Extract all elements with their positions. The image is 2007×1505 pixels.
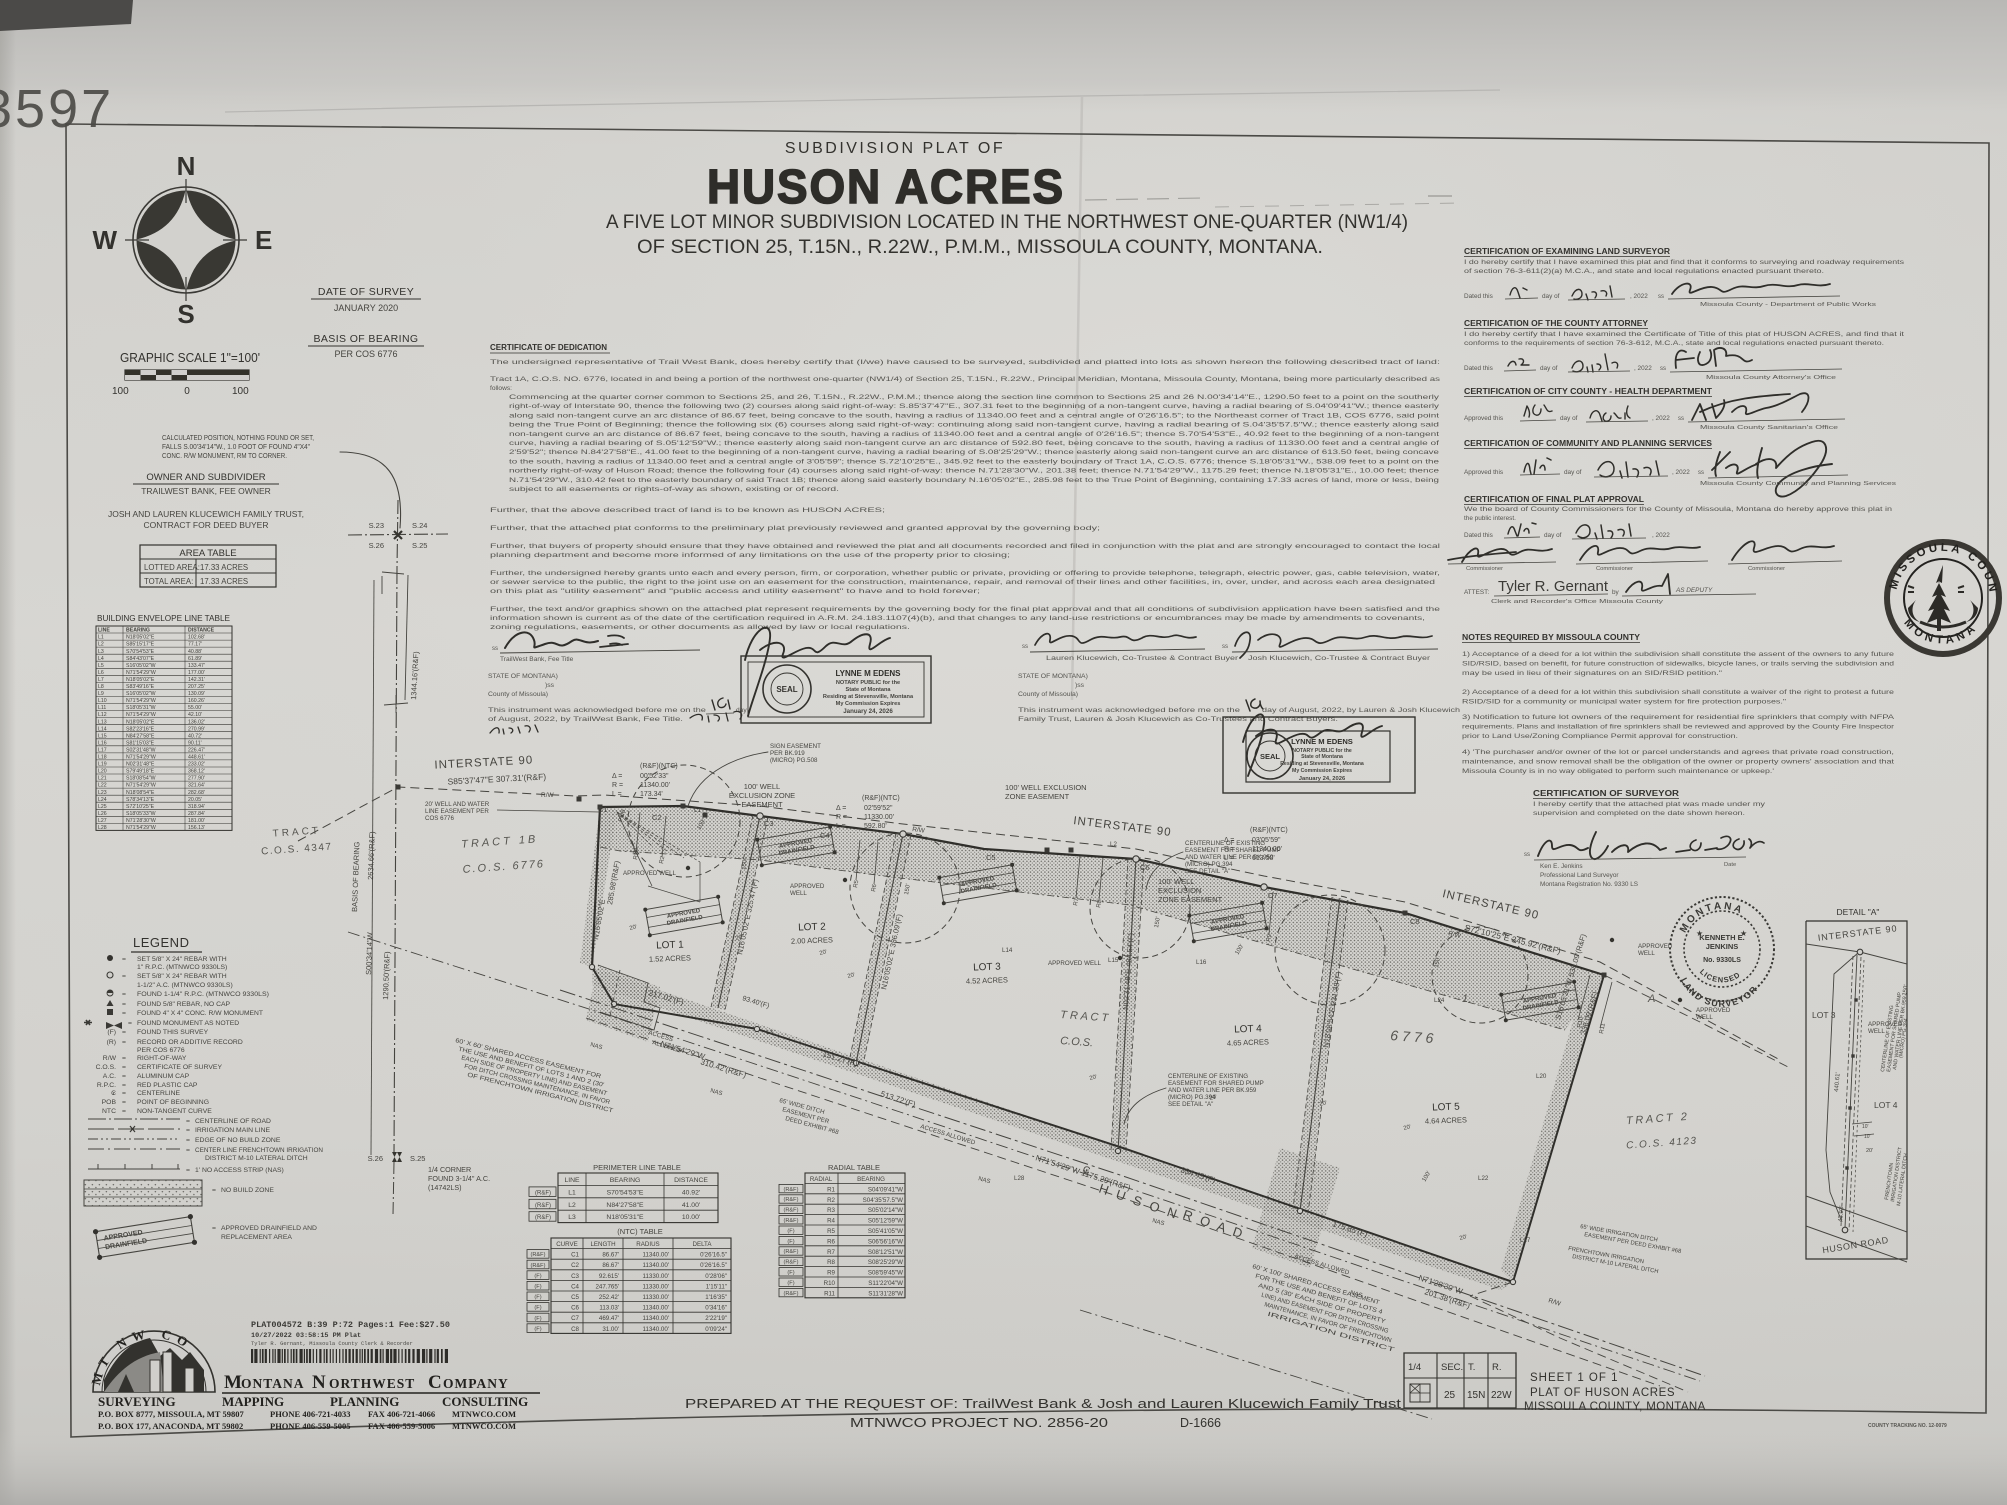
svg-text:SET 5/8" X 24" REBAR WITH: SET 5/8" X 24" REBAR WITH [137, 956, 227, 963]
svg-text:20.05': 20.05' [188, 797, 202, 803]
svg-text:, 2022: , 2022 [1652, 415, 1670, 422]
svg-text:Montana Registration No. 9330: Montana Registration No. 9330 LS [1540, 881, 1638, 888]
svg-text:IRRIGATION MAIN LINE: IRRIGATION MAIN LINE [195, 1127, 270, 1134]
svg-text:S70'54'53"E: S70'54'53"E [607, 1189, 644, 1196]
svg-text:CENTERLINE OF ROAD: CENTERLINE OF ROAD [195, 1118, 271, 1125]
svg-text:PLAT OF HUSON ACRES: PLAT OF HUSON ACRES [1530, 1387, 1675, 1399]
svg-text:Tyler R. Gernant: Tyler R. Gernant [1498, 578, 1609, 595]
svg-text:00'52'33": 00'52'33" [640, 773, 669, 780]
svg-text:RADIUS: RADIUS [636, 1241, 659, 1248]
svg-text:day of: day of [1542, 293, 1560, 300]
svg-text:DELTA: DELTA [692, 1241, 712, 1248]
svg-text:conforms to the requirements o: conforms to the requirements of section … [1464, 340, 1884, 347]
svg-text:Commissioner: Commissioner [1466, 566, 1503, 572]
svg-text:STATE OF MONTANA): STATE OF MONTANA) [488, 673, 558, 680]
svg-text:R4: R4 [827, 1218, 835, 1225]
svg-text:L13: L13 [98, 719, 107, 725]
svg-text:D-1666: D-1666 [1180, 1416, 1221, 1430]
svg-text:northerly right-of-way of Huso: northerly right-of-way of Huson Road; th… [509, 468, 1439, 475]
svg-text:FAX 406-721-4066: FAX 406-721-4066 [368, 1409, 435, 1419]
svg-text:CERTIFICATION OF CITY COUNTY -: CERTIFICATION OF CITY COUNTY - HEALTH DE… [1464, 387, 1712, 396]
svg-text:M: M [224, 1372, 242, 1393]
svg-text:R11: R11 [824, 1290, 835, 1297]
svg-text:S05'02'14"W: S05'02'14"W [868, 1207, 903, 1214]
svg-text:L28: L28 [98, 825, 107, 831]
svg-text:DISTRICT M-10 LATERAL DITCH: DISTRICT M-10 LATERAL DITCH [205, 1155, 308, 1162]
svg-text:(MICRO) PG.508: (MICRO) PG.508 [770, 757, 818, 764]
svg-text:L14: L14 [98, 726, 107, 732]
svg-text:PERIMETER LINE TABLE: PERIMETER LINE TABLE [593, 1163, 681, 1172]
svg-text:100' WELL: 100' WELL [1158, 877, 1194, 886]
svg-text:(F): (F) [787, 1239, 794, 1245]
svg-text:LYNNE M EDENS: LYNNE M EDENS [835, 669, 901, 678]
svg-text:FOUND 3-1/4" A.C.: FOUND 3-1/4" A.C. [428, 1174, 490, 1183]
svg-text:282.68': 282.68' [188, 790, 205, 796]
svg-text:177.00': 177.00' [188, 670, 205, 676]
svg-text:WELL: WELL [1638, 950, 1655, 957]
svg-text:S72'10'25"E: S72'10'25"E [126, 804, 155, 810]
svg-text:C2: C2 [571, 1262, 579, 1269]
svg-text:LOT 2: LOT 2 [798, 922, 826, 934]
svg-text:Clerk and Recorder's Office Mi: Clerk and Recorder's Office Missoula Cou… [1491, 599, 1663, 605]
svg-text:(F): (F) [107, 1029, 116, 1036]
svg-text:(R&F): (R&F) [784, 1208, 799, 1214]
svg-text:4.52 ACRES: 4.52 ACRES [966, 975, 1008, 985]
svg-text:FOUND THIS SURVEY: FOUND THIS SURVEY [137, 1029, 209, 1036]
svg-text:0'26'16.5": 0'26'16.5" [700, 1262, 727, 1269]
svg-text:100' WELL: 100' WELL [744, 782, 780, 791]
svg-text:LOT 4: LOT 4 [1874, 1100, 1898, 1110]
svg-text:(R&F)(NTC): (R&F)(NTC) [862, 795, 900, 802]
svg-text:L5: L5 [98, 663, 104, 669]
svg-text:SEAL: SEAL [1260, 752, 1280, 761]
svg-text:L23: L23 [98, 790, 107, 796]
svg-text:(F): (F) [787, 1270, 794, 1276]
svg-text:or sewer service to the public: or sewer service to the public, the righ… [490, 579, 1436, 586]
svg-text:592.80': 592.80' [864, 823, 887, 830]
svg-text:ss: ss [1678, 416, 1684, 422]
svg-text:APPROVED: APPROVED [790, 883, 825, 890]
svg-text:BEARING: BEARING [610, 1177, 641, 1184]
svg-text:6776: 6776 [1390, 1027, 1438, 1046]
svg-text:C5: C5 [986, 853, 996, 862]
svg-text:92.615': 92.615' [599, 1273, 619, 1280]
svg-text:S.23: S.23 [369, 521, 384, 530]
svg-text:2634.66'(R&F): 2634.66'(R&F) [366, 831, 377, 880]
svg-text:along said non-tangent curve a: along said non-tangent curve an arc dist… [509, 412, 1439, 419]
svg-text:=: = [122, 1039, 126, 1046]
svg-text:C3: C3 [571, 1273, 579, 1280]
svg-text:L6: L6 [98, 670, 104, 676]
svg-text:S.24: S.24 [412, 521, 427, 530]
svg-text:PHONE 406-721-4033: PHONE 406-721-4033 [270, 1409, 351, 1419]
svg-text:APPROVED: APPROVED [1696, 1007, 1731, 1014]
svg-text:0'34'16": 0'34'16" [705, 1305, 727, 1312]
svg-text:10': 10' [1862, 1124, 1869, 1130]
svg-text:368.12': 368.12' [188, 769, 205, 775]
svg-text:S79'49'18"E: S79'49'18"E [126, 769, 155, 775]
svg-text:0: 0 [184, 386, 190, 397]
svg-text:Dated this: Dated this [1464, 365, 1493, 372]
svg-text:AS DEPUTY: AS DEPUTY [1675, 587, 1713, 594]
svg-text:(NTC) TABLE: (NTC) TABLE [617, 1227, 663, 1236]
svg-text:APPROVED WELL: APPROVED WELL [623, 870, 677, 877]
svg-text:R9: R9 [827, 1270, 835, 1277]
svg-text:N18'05'02"E: N18'05'02"E [126, 719, 155, 725]
svg-text:on this plat as "utility easem: on this plat as "utility easement" and "… [490, 588, 980, 595]
svg-text:11330.00': 11330.00' [642, 1273, 669, 1280]
svg-text:PER COS 6776: PER COS 6776 [334, 349, 397, 359]
svg-text:Tyler R. Gernant, Missoula Cou: Tyler R. Gernant, Missoula County Clerk … [251, 1341, 413, 1347]
svg-text:BEARING: BEARING [126, 628, 150, 634]
svg-text:(14742LS): (14742LS) [428, 1183, 462, 1192]
svg-text:=: = [122, 956, 126, 963]
svg-text:L27: L27 [98, 818, 107, 824]
svg-text:NTC: NTC [102, 1108, 116, 1115]
svg-text:WELL: WELL [1696, 1014, 1713, 1021]
svg-text:C.O.S.: C.O.S. [1060, 1035, 1094, 1049]
svg-text:CERTIFICATION OF SURVEYOR: CERTIFICATION OF SURVEYOR [1533, 789, 1679, 798]
svg-text:L19: L19 [98, 762, 107, 768]
svg-text:10.00': 10.00' [682, 1214, 700, 1221]
svg-text:to the south, having a radius: to the south, having a radius of 11340.0… [509, 458, 1439, 465]
svg-text:DATE OF SURVEY: DATE OF SURVEY [318, 286, 414, 298]
svg-text:11330.00': 11330.00' [642, 1294, 669, 1301]
svg-text:Residing at Stevensville, Mont: Residing at Stevensville, Montana [1280, 761, 1364, 767]
svg-text:S82'23'16"E: S82'23'16"E [126, 726, 155, 732]
svg-text:L8: L8 [98, 684, 104, 690]
svg-text:20': 20' [1866, 1148, 1873, 1154]
svg-text:AREA TABLE: AREA TABLE [179, 548, 236, 559]
svg-text:PHONE 406-559-5005: PHONE 406-559-5005 [270, 1421, 351, 1431]
svg-text:C.O.S.: C.O.S. [96, 1064, 117, 1071]
svg-text:(R&F): (R&F) [531, 1263, 546, 1269]
svg-text:N18'05'02"E: N18'05'02"E [126, 635, 155, 641]
svg-text:follows:: follows: [490, 385, 512, 392]
svg-text:SID/RSID, based on benefit, fo: SID/RSID, based on benefit, for future c… [1462, 661, 1895, 668]
svg-text:R1: R1 [827, 1186, 835, 1193]
svg-text:(R&F): (R&F) [784, 1260, 799, 1266]
svg-text:TRAILWEST BANK, FEE OWNER: TRAILWEST BANK, FEE OWNER [141, 486, 271, 496]
svg-text:321.64': 321.64' [188, 783, 205, 789]
svg-text:LEGEND: LEGEND [133, 935, 189, 950]
svg-text:CALCULATED POSITION, NOTHING F: CALCULATED POSITION, NOTHING FOUND OR SE… [162, 435, 314, 442]
svg-text:WELL: WELL [1868, 1028, 1885, 1035]
svg-text:173.34': 173.34' [640, 791, 663, 798]
svg-text:P.O. BOX 8777, MISSOULA, MT: P.O. BOX 8777, MISSOULA, MT 59807 [98, 1409, 244, 1419]
svg-text:Missoula County Sanitarian's O: Missoula County Sanitarian's Office [1700, 425, 1838, 431]
svg-text:(F): (F) [534, 1273, 541, 1279]
svg-text:County of Missoula): County of Missoula) [488, 691, 548, 698]
svg-text:3) Notification to future lot: 3) Notification to future lot owners of … [1462, 714, 1895, 721]
svg-text:L28: L28 [1014, 1175, 1025, 1182]
svg-text:N71'54'29"W: N71'54'29"W [126, 670, 156, 676]
svg-text:CONC. R/W MONUMENT, RM TO CORN: CONC. R/W MONUMENT, RM TO CORNER. [162, 453, 287, 460]
svg-text:Commissioner: Commissioner [1596, 566, 1633, 572]
svg-text:S70'54'53"E: S70'54'53"E [126, 649, 155, 655]
svg-text:COUNTY TRACKING NO. 12-0079: COUNTY TRACKING NO. 12-0079 [1868, 1423, 1947, 1429]
svg-text:R10: R10 [824, 1280, 836, 1287]
svg-text:2'59'52"; thence N.84'27'58"E.: 2'59'52"; thence N.84'27'58"E., 41.00 fe… [509, 449, 1439, 456]
svg-text:226.47': 226.47' [188, 747, 205, 753]
svg-text:N18'05'02"E: N18'05'02"E [126, 677, 155, 683]
svg-text:January 24, 2026: January 24, 2026 [843, 708, 893, 715]
svg-text:CURVE: CURVE [556, 1241, 578, 1248]
svg-text:=: = [122, 991, 126, 998]
svg-text:APPROVED: APPROVED [1868, 1021, 1903, 1028]
svg-text:S08'59'45"W: S08'59'45"W [868, 1270, 903, 1277]
svg-text:Commissioner: Commissioner [1748, 566, 1785, 572]
svg-text:A: A [1647, 993, 1655, 1005]
svg-text:L3: L3 [568, 1214, 576, 1221]
svg-text:RADIAL TABLE: RADIAL TABLE [828, 1163, 880, 1172]
svg-text:I do hereby certify that I hav: I do hereby certify that I have examined… [1464, 331, 1904, 338]
svg-text:N18'05'31"E: N18'05'31"E [606, 1214, 644, 1221]
svg-text:4.65 ACRES: 4.65 ACRES [1227, 1037, 1269, 1047]
svg-text:EXCLUSION: EXCLUSION [1158, 886, 1201, 895]
svg-text:Commencing at the quarter corn: Commencing at the quarter corner common … [509, 394, 1440, 401]
svg-text:=: = [122, 1001, 126, 1008]
svg-text:=: = [122, 1090, 126, 1097]
svg-text:L1: L1 [98, 635, 104, 641]
svg-text:S81'15'03"E: S81'15'03"E [126, 740, 155, 746]
svg-text:S16'05'02"W: S16'05'02"W [126, 663, 156, 669]
svg-text:R =: R = [836, 814, 847, 821]
svg-text:County of Missoula): County of Missoula) [1018, 691, 1078, 698]
svg-text:(F): (F) [534, 1295, 541, 1301]
svg-text:SURVEYING: SURVEYING [98, 1394, 176, 1409]
svg-text:N71'54'29"W: N71'54'29"W [126, 783, 156, 789]
svg-text:C3: C3 [764, 819, 774, 828]
svg-text:CERTIFICATE OF SURVEY: CERTIFICATE OF SURVEY [137, 1064, 222, 1071]
svg-text:11340.00': 11340.00' [642, 1315, 669, 1322]
svg-text:MTNWCO.COM: MTNWCO.COM [452, 1409, 516, 1419]
svg-text:ss: ss [1524, 852, 1530, 858]
svg-text:L =: L = [612, 791, 622, 798]
svg-text:HUSON ACRES: HUSON ACRES [707, 161, 1065, 214]
svg-text:A.C.: A.C. [103, 1073, 116, 1080]
svg-text:My Commission Expires: My Commission Expires [836, 701, 901, 707]
svg-text:MISSOULA COUNTY, MONTANA: MISSOULA COUNTY, MONTANA [1524, 1401, 1706, 1413]
svg-text:prior to Land Use/Zoning Compl: prior to Land Use/Zoning Compliance Perm… [1462, 733, 1738, 740]
svg-text:N71'54'29"W: N71'54'29"W [126, 755, 156, 761]
svg-text:448.61': 448.61' [188, 755, 205, 761]
svg-text:FALLS S.00'34'14"W., 1.0 FOOT: FALLS S.00'34'14"W., 1.0 FOOT OF FOUND 4… [162, 444, 310, 451]
svg-text:90.11': 90.11' [188, 740, 202, 746]
svg-text:POB: POB [102, 1099, 117, 1106]
svg-text:(R&F)(NTC): (R&F)(NTC) [1250, 827, 1288, 834]
svg-text:11340.00': 11340.00' [642, 1305, 669, 1312]
svg-text:S02'31'48"W: S02'31'48"W [126, 747, 156, 753]
svg-text:0'28'06": 0'28'06" [705, 1273, 727, 1280]
svg-text:, 2022: , 2022 [1652, 532, 1670, 539]
svg-text:day of: day of [1540, 365, 1558, 372]
svg-text:ORTHWEST: ORTHWEST [329, 1376, 415, 1391]
svg-text:=: = [122, 1073, 126, 1080]
svg-text:L1: L1 [694, 807, 701, 814]
svg-text:R6: R6 [827, 1238, 835, 1245]
svg-text:RSID/SID for a community or mu: RSID/SID for a community or municipal wa… [1462, 699, 1786, 706]
svg-text:The undersigned representative: The undersigned representative of Trail … [490, 359, 1440, 366]
svg-text:277.90': 277.90' [188, 776, 205, 782]
svg-text:maintenance, and snow removal: maintenance, and snow removal shall be t… [1462, 759, 1894, 766]
svg-text:SHEET 1 OF 1: SHEET 1 OF 1 [1530, 1372, 1618, 1384]
svg-text:10/27/2022 03:58:15 PM Plat: 10/27/2022 03:58:15 PM Plat [251, 1332, 361, 1340]
svg-text:S18'08'54"W: S18'08'54"W [126, 776, 156, 782]
svg-text:L25: L25 [98, 804, 107, 810]
svg-text:OWNER AND SUBDIVIDER: OWNER AND SUBDIVIDER [146, 472, 265, 483]
svg-text:L22: L22 [1478, 1175, 1489, 1182]
svg-text:L =: L = [836, 823, 846, 830]
svg-text:(R&F): (R&F) [535, 1190, 551, 1196]
svg-text:17.33 ACRES: 17.33 ACRES [200, 577, 248, 586]
svg-text:, 2022: , 2022 [1630, 293, 1648, 300]
svg-text:40.88': 40.88' [188, 649, 202, 655]
svg-text:136.02': 136.02' [188, 719, 205, 725]
svg-text:Δ =: Δ = [612, 773, 622, 780]
svg-text:APPROVED DRAINFIELD AND: APPROVED DRAINFIELD AND [221, 1225, 317, 1232]
svg-text:DISTANCE: DISTANCE [674, 1177, 708, 1184]
svg-text:PLAT004572 B:39 P:72 Pages:1: PLAT004572 B:39 P:72 Pages:1 Fee:$27.50 [251, 1320, 450, 1330]
svg-text:S08'25'29"W: S08'25'29"W [868, 1259, 903, 1266]
svg-text:)ss: )ss [1075, 682, 1085, 689]
svg-text:11340.00': 11340.00' [642, 1262, 669, 1269]
svg-text:We the board of County Commiss: We the board of County Commissioners for… [1464, 506, 1893, 513]
svg-text:Professional Land Surveyor: Professional Land Surveyor [1540, 872, 1619, 879]
svg-text:LYNNE M EDENS: LYNNE M EDENS [1291, 737, 1353, 746]
svg-text:130.09': 130.09' [188, 691, 205, 697]
svg-text:LINE: LINE [564, 1177, 580, 1184]
svg-text:AND WATER LINE PER BK.959: AND WATER LINE PER BK.959 [1185, 854, 1274, 861]
svg-text:ss: ss [1022, 644, 1028, 650]
svg-text:FOUND MONUMENT AS NOTED: FOUND MONUMENT AS NOTED [137, 1020, 239, 1027]
svg-text:L1: L1 [568, 1189, 576, 1196]
svg-text:L3: L3 [98, 649, 104, 655]
svg-text:LOT 5: LOT 5 [1432, 1102, 1460, 1114]
svg-text:EDGE OF NO BUILD ZONE: EDGE OF NO BUILD ZONE [195, 1137, 281, 1144]
svg-text:=: = [186, 1167, 190, 1174]
svg-text:S.26: S.26 [368, 1154, 383, 1163]
svg-text:may be used in lieu of their s: may be used in lieu of their signatures … [1462, 670, 1722, 677]
svg-text:(R&F)(NTC): (R&F)(NTC) [640, 763, 678, 770]
svg-text:Date: Date [1724, 862, 1736, 868]
svg-text:Ken E. Jenkins: Ken E. Jenkins [1540, 863, 1583, 870]
svg-text:SEAL: SEAL [776, 685, 797, 694]
svg-text:L20: L20 [1536, 1073, 1547, 1080]
svg-text:R =: R = [612, 782, 623, 789]
svg-text:N18'08'54"E: N18'08'54"E [126, 790, 155, 796]
svg-text:S78'34'13"E: S78'34'13"E [126, 797, 155, 803]
svg-text:PLANNING: PLANNING [330, 1394, 399, 1409]
svg-text:L2: L2 [568, 1202, 576, 1209]
svg-text:subject to all easements or ri: subject to all easements or rights-of-wa… [509, 486, 839, 493]
svg-text:11340.00': 11340.00' [642, 1326, 669, 1333]
svg-text:JENKINS: JENKINS [1706, 942, 1739, 951]
svg-text:SEE DETAIL "A": SEE DETAIL "A" [1168, 1101, 1213, 1108]
svg-text:CERTIFICATION OF THE COUNTY AT: CERTIFICATION OF THE COUNTY ATTORNEY [1464, 319, 1649, 328]
svg-text:R5: R5 [827, 1228, 835, 1235]
svg-text:CERTIFICATE OF DEDICATION: CERTIFICATE OF DEDICATION [490, 343, 607, 352]
svg-text:S04'09'41"W: S04'09'41"W [868, 1186, 903, 1193]
svg-text:(R&F): (R&F) [535, 1203, 551, 1209]
svg-text:86.67': 86.67' [602, 1262, 619, 1269]
svg-text:L17: L17 [98, 747, 107, 753]
svg-text:L2: L2 [98, 642, 104, 648]
svg-text:=: = [122, 1108, 126, 1115]
svg-text:L24: L24 [98, 797, 107, 803]
svg-text:MTNWCO PROJECT NO. 2856-20: MTNWCO PROJECT NO. 2856-20 [850, 1416, 1108, 1430]
svg-text:N.71'54'29"W., 310.42 feet to: N.71'54'29"W., 310.42 feet to the easter… [509, 477, 1439, 484]
svg-text:MAPPING: MAPPING [222, 1394, 284, 1409]
svg-text:S.26: S.26 [369, 541, 384, 550]
svg-text:Missoula County Attorney's Off: Missoula County Attorney's Office [1706, 375, 1836, 381]
svg-text:S05'41'05"W: S05'41'05"W [868, 1228, 903, 1235]
svg-text:=: = [128, 1020, 132, 1027]
svg-text:W: W [92, 225, 117, 255]
svg-text:Missoula County - Department o: Missoula County - Department of Public W… [1700, 302, 1876, 308]
svg-text:CENTERLINE OF EXISTING: CENTERLINE OF EXISTING [1185, 840, 1265, 847]
svg-text:day of: day of [1560, 415, 1578, 422]
svg-text:ATTEST:: ATTEST: [1464, 589, 1489, 596]
svg-text:S.25: S.25 [410, 1154, 425, 1163]
svg-text:January 24, 2026: January 24, 2026 [1299, 776, 1346, 782]
svg-text:RIGHT-OF-WAY: RIGHT-OF-WAY [137, 1055, 187, 1062]
svg-text:=: = [122, 1055, 126, 1062]
svg-text:100: 100 [112, 386, 129, 397]
svg-text:(R&F): (R&F) [784, 1291, 799, 1297]
svg-text:C2: C2 [652, 813, 662, 822]
svg-text:POINT OF BEGINNING: POINT OF BEGINNING [137, 1099, 209, 1106]
svg-text:S04'35'57.5"W: S04'35'57.5"W [863, 1197, 903, 1204]
svg-text:=: = [186, 1137, 190, 1144]
svg-text:L16: L16 [98, 740, 107, 746]
svg-text:STATE OF MONTANA): STATE OF MONTANA) [1018, 673, 1088, 680]
svg-text:11330.00': 11330.00' [864, 814, 894, 821]
svg-text:L27: L27 [1520, 1237, 1531, 1244]
svg-text:JOSH AND LAUREN KLUCEWICH FAMI: JOSH AND LAUREN KLUCEWICH FAMILY TRUST, [108, 509, 304, 519]
svg-text:(R): (R) [107, 1039, 116, 1046]
svg-text:Lauren Klucewich, Co-Trustee &: Lauren Klucewich, Co-Trustee & Contract … [1046, 655, 1239, 662]
svg-text:JANUARY 2020: JANUARY 2020 [334, 303, 398, 313]
svg-text:0'26'16.5": 0'26'16.5" [700, 1252, 727, 1259]
svg-text:=: = [212, 1187, 216, 1194]
svg-text:P.O. BOX 177, ANACONDA, MT: P.O. BOX 177, ANACONDA, MT 59802 [98, 1421, 243, 1431]
svg-text:287.84': 287.84' [188, 811, 205, 817]
svg-text:L16: L16 [1196, 959, 1207, 966]
svg-text:L26: L26 [98, 811, 107, 817]
svg-text:FOUND 1-1/4" R.P.C. (MTNWCO 93: FOUND 1-1/4" R.P.C. (MTNWCO 9330LS) [137, 991, 269, 998]
svg-text:ss: ss [1698, 470, 1704, 476]
svg-text:C4: C4 [571, 1283, 579, 1290]
svg-text:I hereby certify that the atta: I hereby certify that the attached plat … [1533, 801, 1766, 808]
svg-text:non-tangent curve an arc dista: non-tangent curve an arc distance of 86.… [509, 431, 1439, 438]
svg-text:No. 9330LS: No. 9330LS [1703, 957, 1741, 964]
svg-text:APPROVED: APPROVED [1638, 943, 1673, 950]
svg-text:NON-TANGENT CURVE: NON-TANGENT CURVE [137, 1108, 212, 1115]
svg-text:day of: day of [1564, 469, 1582, 476]
svg-text:zoning regulations, easements,: zoning regulations, easements, or other … [490, 624, 910, 631]
svg-text:ss: ss [1222, 644, 1228, 650]
svg-text:17.33 ACRES: 17.33 ACRES [200, 563, 248, 572]
svg-text:2'22'19": 2'22'19" [705, 1315, 727, 1322]
svg-text:102.68': 102.68' [188, 635, 205, 641]
svg-text:S: S [177, 299, 194, 329]
svg-text:31.00': 31.00' [602, 1326, 619, 1333]
svg-text:Dated this: Dated this [1464, 532, 1493, 539]
svg-text:of August, 2022, by TrailWest: of August, 2022, by TrailWest Bank, Fee … [488, 716, 683, 723]
svg-text:20' WELL AND WATER: 20' WELL AND WATER [425, 801, 490, 808]
svg-text:=: = [122, 1064, 126, 1071]
